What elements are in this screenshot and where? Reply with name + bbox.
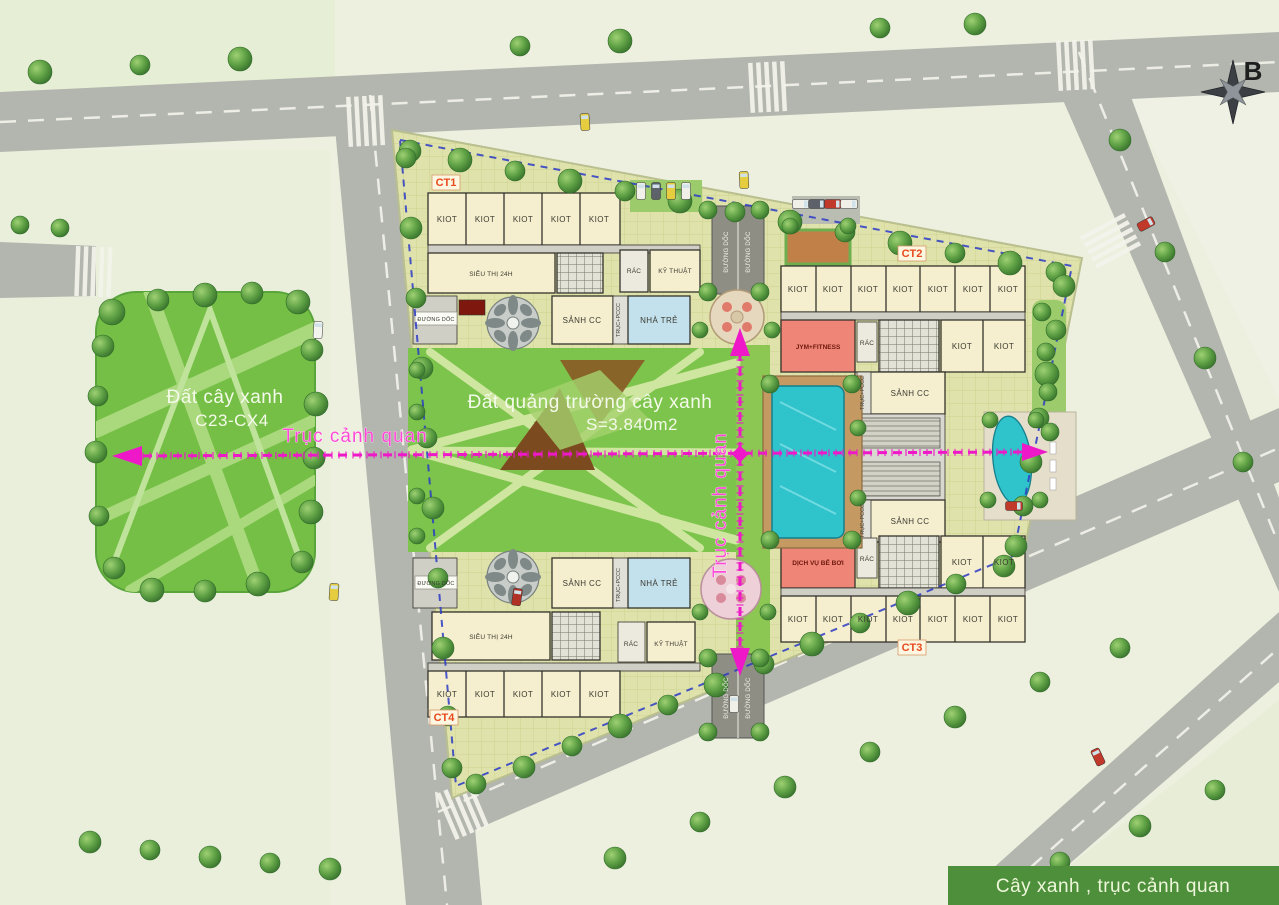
ramp-label: ĐƯỜNG DỐC [723,231,730,273]
trash-label: RÁC [627,266,641,275]
tree-icon [690,812,710,832]
tree-icon [761,531,779,549]
building-ct3 [781,536,1025,642]
kiot-label: KIOT [952,342,972,351]
tree-icon [782,218,798,234]
tree-icon [998,251,1022,275]
tree-icon [850,490,866,506]
car-icon [652,183,661,200]
kiot-label: KIOT [823,615,843,624]
tree-icon [615,181,635,201]
car-icon [739,171,749,188]
ramp-label: ĐƯỜNG DỐC [417,316,454,323]
tree-icon [319,858,341,880]
tree-icon [303,447,325,469]
core-label: TRỤC+PCCC [616,303,622,337]
kiot-label: KIOT [589,215,609,224]
technical-label: KỸ THUẬT [658,266,692,275]
tree-icon [840,218,856,234]
tree-icon [944,706,966,728]
kiot-label: KIOT [994,558,1014,567]
tree-icon [843,531,861,549]
core-label: TRỤC+PCCC [860,504,866,538]
lobby-label: SẢNH CC [563,579,602,588]
car-icon [329,583,339,601]
tree-icon [1005,535,1027,557]
legend: Cây xanh , trục cảnh quan [948,866,1279,905]
tree-icon [896,591,920,615]
tree-icon [1032,492,1048,508]
car-icon [841,200,858,209]
technical-label: KỸ THUẬT [654,639,688,648]
tree-icon [1194,347,1216,369]
kiot-label: KIOT [994,342,1014,351]
legend-label: Cây xanh , trục cảnh quan [996,876,1230,897]
tree-icon [409,528,425,544]
tree-icon [725,202,745,222]
tree-icon [1037,343,1055,361]
tree-icon [699,283,717,301]
ramp-label: ĐƯỜNG DỐC [745,677,752,719]
tree-icon [51,219,69,237]
tree-icon [1033,303,1051,321]
tree-icon [85,441,107,463]
tree-icon [699,649,717,667]
tree-icon [1053,275,1075,297]
ramp-label: ĐƯỜNG DỐC [417,580,454,587]
tree-icon [850,420,866,436]
tree-icon [761,375,779,393]
kiot-label: KIOT [963,615,983,624]
tree-icon [432,637,454,659]
supermarket-label: SIÊU THỊ 24H [469,632,513,641]
tree-icon [1041,423,1059,441]
tree-icon [1233,452,1253,472]
ramp-label: ĐƯỜNG DỐC [745,231,752,273]
kiot-label: KIOT [928,615,948,624]
tree-icon [980,492,996,508]
ct4-label: CT4 [434,712,456,724]
tree-icon [658,695,678,715]
kiot-label: KIOT [952,558,972,567]
tree-icon [301,339,323,361]
car-icon [825,200,842,209]
tree-icon [79,831,101,853]
tree-icon [1035,362,1059,386]
tree-icon [241,282,263,304]
trash-label: RÁC [860,554,874,563]
kiot-label: KIOT [437,690,457,699]
tree-icon [409,488,425,504]
tree-icon [260,853,280,873]
tree-icon [982,412,998,428]
master-plan-canvas: Đất cây xanh C23-CX4 Đất quảng trường câ… [0,0,1279,905]
tree-icon [199,846,221,868]
park-title: Đất cây xanh [167,387,284,408]
tree-icon [406,288,426,308]
park-code: C23-CX4 [195,411,268,430]
tree-icon [1155,242,1175,262]
tree-icon [422,497,444,519]
tree-icon [246,572,270,596]
kiot-label: KIOT [893,615,913,624]
kiot-label: KIOT [513,690,533,699]
tree-icon [1109,129,1131,151]
tree-icon [228,47,252,71]
axis-horizontal-label: Trục cảnh quan [282,426,427,447]
kiot-label: KIOT [788,615,808,624]
tree-icon [140,840,160,860]
tree-icon [1110,638,1130,658]
tree-icon [1039,383,1057,401]
kiot-label: KIOT [475,215,495,224]
tree-icon [870,18,890,38]
tree-icon [103,557,125,579]
ct1-label: CT1 [436,177,457,189]
tree-icon [1046,320,1066,340]
lobby-label: SẢNH CC [563,316,602,325]
tree-icon [304,392,328,416]
tree-icon [505,161,525,181]
ramp-label: ĐƯỜNG DỐC [723,677,730,719]
ct2-label: CT2 [902,248,923,260]
core-label: TRỤC+PCCC [616,568,622,602]
car-icon [682,183,691,200]
kiot-label: KIOT [998,615,1018,624]
car-icon [667,183,676,200]
compass-north-label: B [1244,56,1263,86]
tree-icon [751,283,769,301]
kiot-label: KIOT [928,285,948,294]
tree-icon [147,289,169,311]
tree-icon [699,201,717,219]
kiot-label: KIOT [998,285,1018,294]
car-icon [580,113,590,131]
tree-icon [604,847,626,869]
plaza-area: S=3.840m2 [586,415,678,434]
car-icon [1006,502,1023,511]
tree-icon [28,60,52,84]
kiot-label: KIOT [788,285,808,294]
kiot-label: KIOT [858,615,878,624]
plaza-title: Đất quảng trường cây xanh [468,392,713,413]
tree-icon [442,758,462,778]
kindergarten-label: NHÀ TRẺ [640,579,678,588]
lobby-label: SẢNH CC [891,517,930,526]
kiot-label: KIOT [551,215,571,224]
kiot-label: KIOT [475,690,495,699]
car-icon [730,696,739,713]
tree-icon [1129,815,1151,837]
gym-label: JYM+FITNESS [796,344,841,351]
tree-icon [396,148,416,168]
car-icon [793,200,810,209]
tree-icon [286,290,310,314]
tree-icon [608,29,632,53]
tree-icon [800,632,824,656]
tree-icon [860,742,880,762]
tree-icon [448,148,472,172]
tree-icon [193,283,217,307]
kindergarten-label: NHÀ TRẺ [640,316,678,325]
trash-label: RÁC [624,639,638,648]
tree-icon [194,580,216,602]
tree-icon [130,55,150,75]
tree-icon [764,322,780,338]
kiot-label: KIOT [513,215,533,224]
tree-icon [692,604,708,620]
trash-label: RÁC [860,338,874,347]
tree-icon [843,375,861,393]
tree-icon [1205,780,1225,800]
supermarket-label: SIÊU THỊ 24H [469,269,513,278]
tree-icon [692,322,708,338]
tree-icon [558,169,582,193]
pool-service-label: DỊCH VỤ BỂ BƠI [792,558,844,567]
pool-main [763,376,862,548]
tree-icon [88,386,108,406]
kiot-label: KIOT [858,285,878,294]
tree-icon [291,551,313,573]
tree-icon [751,201,769,219]
tree-icon [466,774,486,794]
tree-icon [751,649,769,667]
car-icon [637,183,646,200]
tree-icon [760,604,776,620]
kiot-label: KIOT [963,285,983,294]
tree-icon [699,723,717,741]
tree-icon [513,756,535,778]
kiot-label: KIOT [551,690,571,699]
tree-icon [946,574,966,594]
tree-icon [92,335,114,357]
car-icon [313,321,323,339]
core-label: TRỤC+PCCC [860,376,866,410]
tree-icon [945,243,965,263]
lobby-label: SẢNH CC [891,389,930,398]
tree-icon [409,404,425,420]
tree-icon [751,723,769,741]
tree-icon [89,506,109,526]
kiot-label: KIOT [437,215,457,224]
site-plan-map: Đất cây xanh C23-CX4 Đất quảng trường câ… [0,0,1279,905]
kiot-label: KIOT [823,285,843,294]
tree-icon [299,500,323,524]
tree-icon [774,776,796,798]
tree-icon [608,714,632,738]
tree-icon [409,362,425,378]
tree-icon [1030,672,1050,692]
car-icon [809,200,826,209]
tree-icon [562,736,582,756]
kiot-label: KIOT [589,690,609,699]
tree-icon [510,36,530,56]
tree-icon [11,216,29,234]
tree-icon [964,13,986,35]
tree-icon [140,578,164,602]
tree-icon [99,299,125,325]
tree-icon [400,217,422,239]
ct3-label: CT3 [902,642,923,654]
kiot-label: KIOT [893,285,913,294]
axis-vertical-label: Trục cảnh quan [710,432,731,577]
road-stub [0,242,96,298]
tree-icon [1028,412,1044,428]
